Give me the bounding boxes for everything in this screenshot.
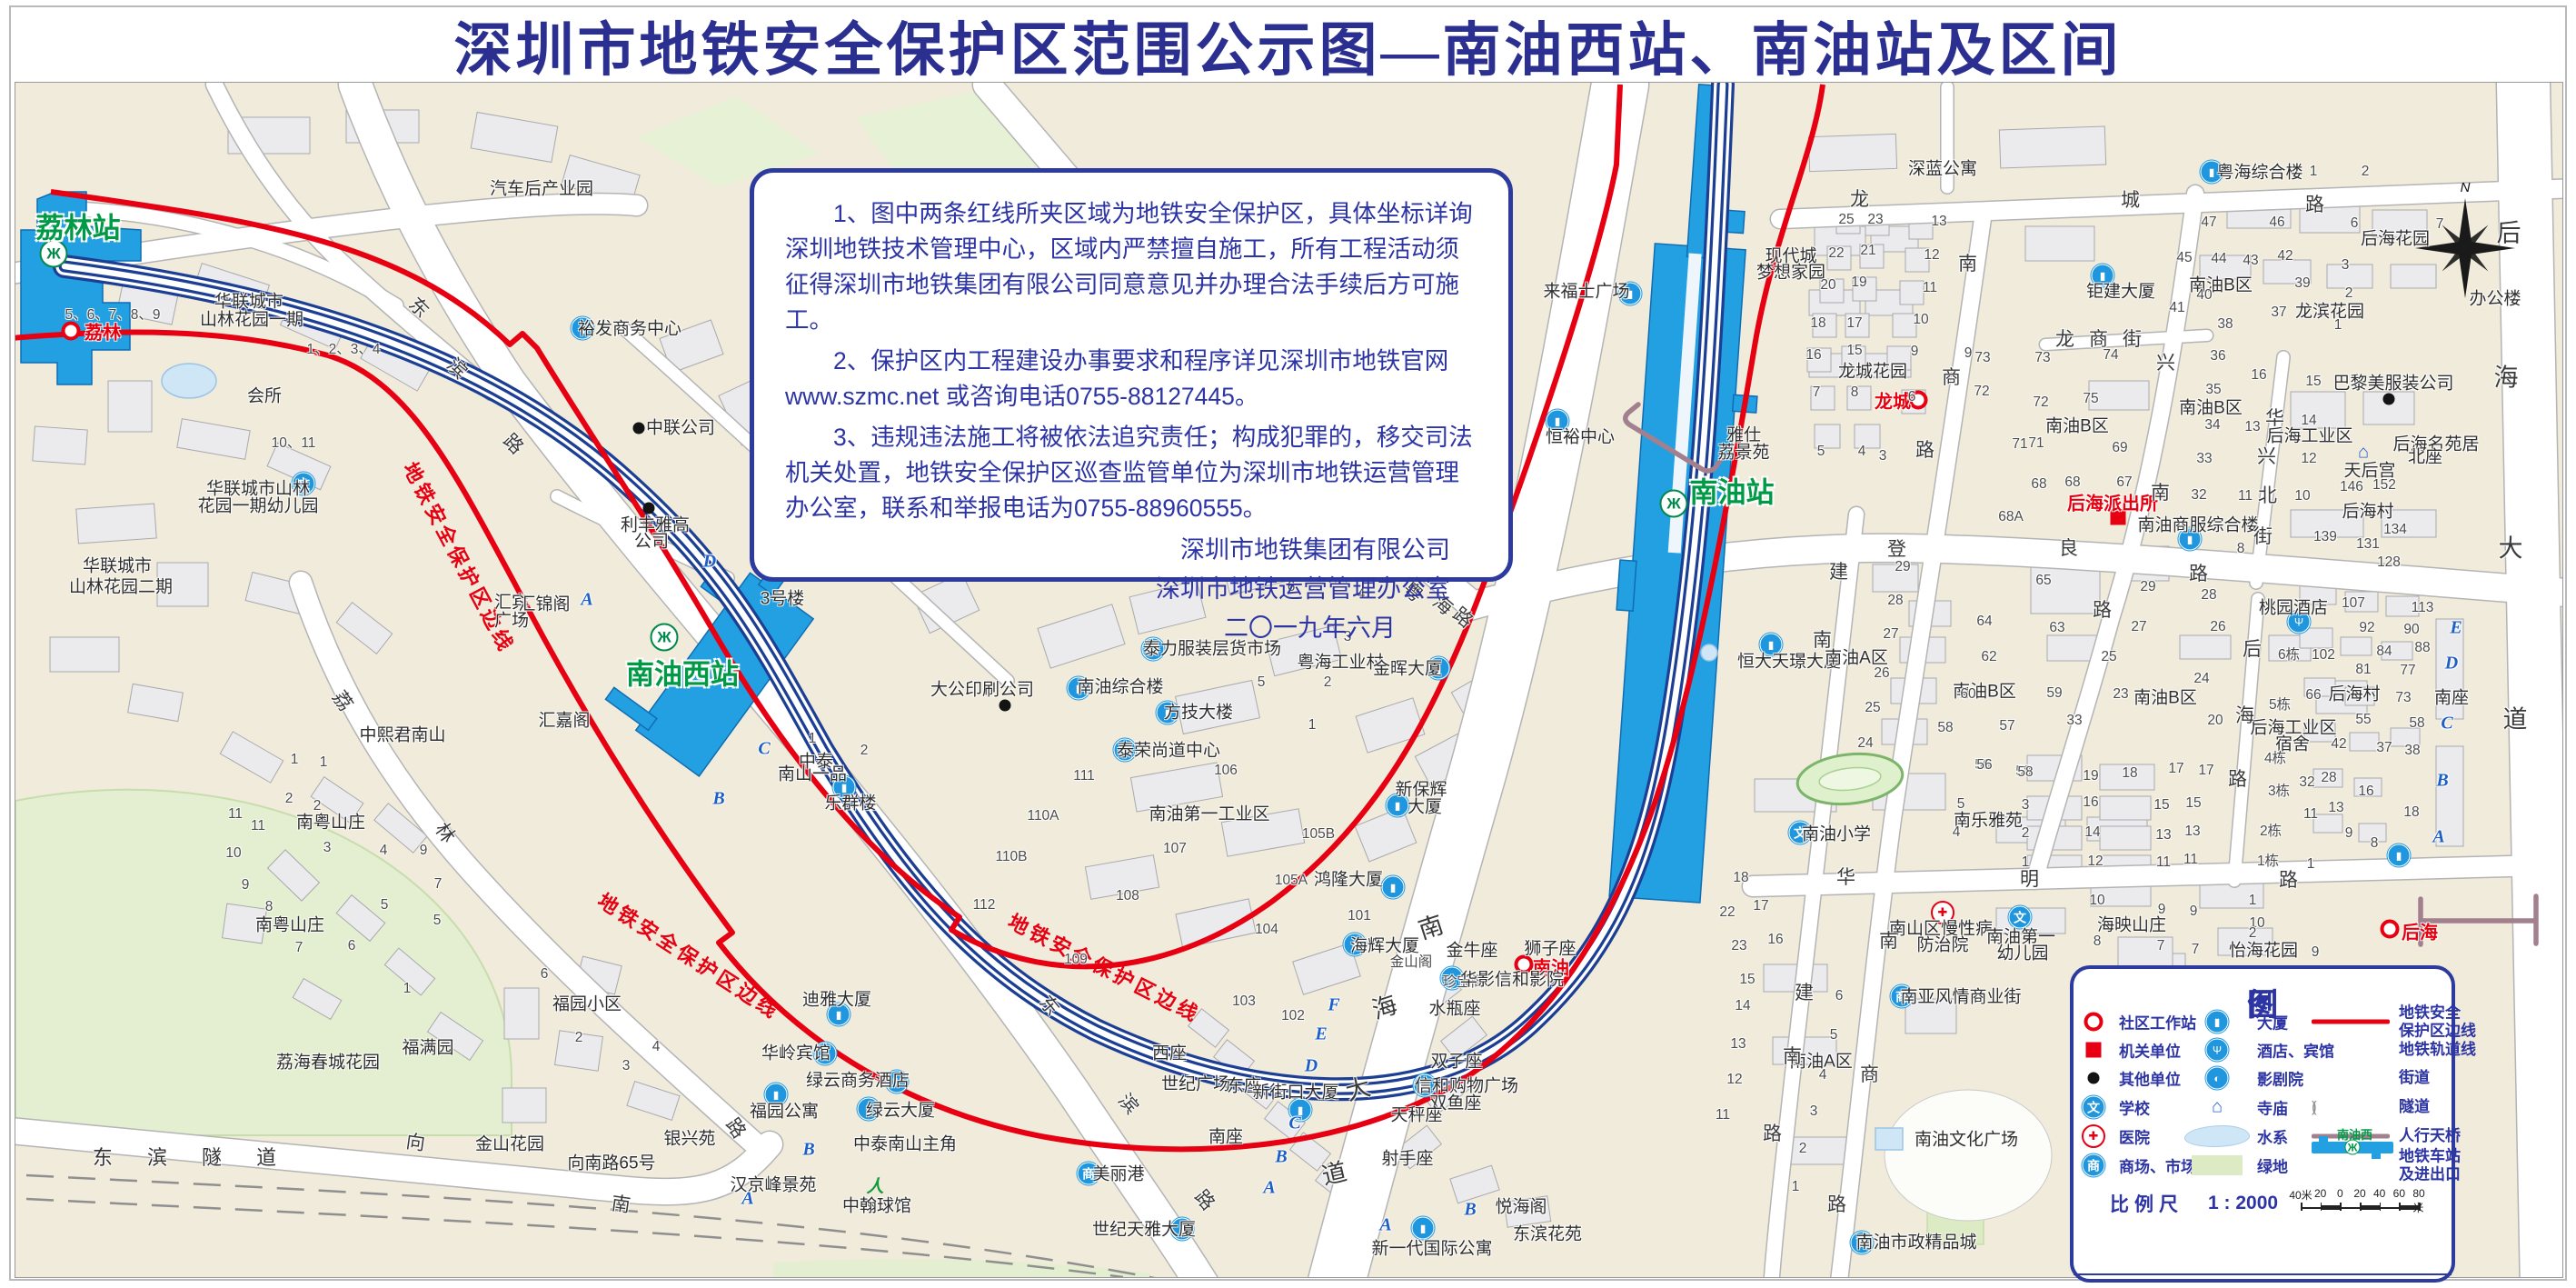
building-icon: ▮	[1068, 677, 1090, 700]
legend-scale-value: 1 : 2000	[2208, 1193, 2278, 1214]
hotel-icon: Ψ	[2288, 611, 2311, 634]
other-unit-icon	[643, 503, 655, 514]
legend-divider	[2074, 1273, 2452, 1275]
building-icon: ▮	[765, 1083, 788, 1106]
legend-symbol-label: 商场、市场	[2119, 1154, 2196, 1177]
compass-n-label: N	[2461, 180, 2471, 195]
notice-signature-office: 深圳市地铁运营管理办公室	[785, 571, 1450, 608]
map-icon: 人	[866, 1173, 883, 1198]
notice-signature-date: 二〇一九年六月	[785, 610, 1396, 647]
building-icon: ▮	[572, 317, 594, 340]
map-icon: 商	[1891, 985, 1914, 1008]
notice-map-page: 深圳市地铁安全保护区范围公示图—南油西站、南油站及区间	[0, 0, 2576, 1288]
map-icon: ▮	[765, 1083, 788, 1106]
legend-building-label: 绿地	[2257, 1154, 2288, 1177]
legend-building-icon: ⌂	[2212, 1097, 2223, 1118]
notice-box: 1、图中两条红线所夹区域为地铁安全保护区，具体坐标详询深圳地铁技术管理中心，区域…	[750, 168, 1513, 582]
metro-logo-icon: Ж	[40, 240, 68, 268]
notice-paragraph-1: 1、图中两条红线所夹区域为地铁安全保护区，具体坐标详询深圳地铁技术管理中心，区域…	[785, 196, 1477, 338]
building-icon: ▮	[858, 1098, 880, 1121]
map-icon: ✚	[1931, 901, 1954, 924]
legend-symbol-icon	[2086, 1043, 2102, 1058]
community-station-icon	[1909, 391, 1928, 410]
map-icon	[62, 322, 81, 341]
notice-paragraph-2: 2、保护区内工程建设办事要求和程序详见深圳市地铁官网 www.szmc.net …	[785, 344, 1477, 414]
legend-line-sample: Ж南油西	[2312, 1129, 2393, 1165]
map-icon: ▮	[1157, 702, 1179, 724]
building-icon: ▮	[1619, 283, 1642, 305]
legend-symbol-label: 社区工作站	[2119, 1011, 2196, 1033]
map-icon: 商	[1078, 1163, 1100, 1185]
legend-scale-label: 比例尺	[2110, 1190, 2183, 1217]
map-icon: ▮	[1171, 1218, 1194, 1241]
building-icon: ▮	[2179, 528, 2202, 551]
building-icon: ▮	[1157, 702, 1179, 724]
legend-building-label: 大厦	[2257, 1011, 2288, 1033]
map-icon: ▮	[1760, 634, 1783, 656]
map-icon: 文	[1789, 822, 1812, 844]
legend-box: 图 例 社区工作站机关单位其他单位文学校✚医院商商场、市场▮大厦Ψ酒店、宾馆◐影…	[2070, 965, 2455, 1283]
metro-logo-icon: Ж	[1660, 490, 1688, 518]
legend-building-icon: ◐	[2206, 1067, 2229, 1090]
legend-symbol-label: 机关单位	[2119, 1039, 2181, 1062]
map-icon: ▮	[1068, 677, 1090, 700]
map-icon: Ж	[651, 624, 679, 652]
building-icon: ▮	[1114, 739, 1137, 762]
legend-symbol-label: 学校	[2119, 1096, 2150, 1119]
map-icon: ▮	[2179, 528, 2202, 551]
map-icon: ▮	[1114, 739, 1137, 762]
market-icon: 商	[1078, 1163, 1100, 1185]
map-icon	[2383, 394, 2395, 405]
building-icon: ▮	[2201, 161, 2223, 184]
map-icon: ▮	[572, 317, 594, 340]
map-icon: ▮	[1382, 876, 1405, 899]
metro-logo-icon: Ж	[651, 624, 679, 652]
map-icon: ▮	[833, 776, 856, 799]
community-station-icon	[62, 322, 81, 341]
government-unit-icon	[2111, 510, 2126, 525]
map-icon: ▮	[1344, 934, 1367, 956]
map-icon: ▮	[2092, 265, 2114, 287]
notice-signature-company: 深圳市地铁集团有限公司	[785, 532, 1450, 569]
legend-symbol-label: 其他单位	[2119, 1067, 2181, 1090]
page-title: 深圳市地铁安全保护区范围公示图—南油西站、南油站及区间	[0, 9, 2576, 82]
legend-rows: 社区工作站机关单位其他单位文学校✚医院商商场、市场▮大厦Ψ酒店、宾馆◐影剧院⌂寺…	[2074, 969, 2452, 1279]
map-icon: Ψ	[2288, 611, 2311, 634]
map-icon: ▮	[1412, 1217, 1435, 1240]
map-icon	[1000, 700, 1011, 712]
map-icon	[633, 423, 645, 434]
legend-scale-bar: 40米20020406080米	[2301, 1187, 2419, 1223]
map-icon	[643, 503, 655, 514]
legend-building-icon: Ψ	[2206, 1039, 2229, 1062]
building-icon: ▮	[1547, 410, 1569, 433]
hospital-icon: ✚	[1931, 901, 1954, 924]
map-icon	[1515, 955, 1534, 974]
school-icon: 文	[1789, 822, 1812, 844]
legend-building-label: 酒店、宾馆	[2257, 1039, 2334, 1062]
map-icon: ▮	[2388, 844, 2411, 867]
temple-icon: ⌂	[2358, 443, 2369, 464]
map-icon: ▮	[1547, 410, 1569, 433]
building-icon: ▮	[828, 1003, 850, 1026]
map-icon: ▮	[828, 1003, 850, 1026]
legend-line-label: 地铁安全 保护区边线	[2399, 1003, 2476, 1039]
map-icon: 商	[1414, 1074, 1437, 1097]
market-icon: 商	[1891, 985, 1914, 1008]
building-icon: ▮	[1344, 934, 1367, 956]
other-unit-icon	[1000, 700, 1011, 712]
legend-building-icon	[2184, 1125, 2250, 1147]
map-icon	[2381, 920, 2400, 939]
legend-building-label: 水系	[2257, 1125, 2288, 1148]
map-icon: ▮	[1289, 1099, 1312, 1122]
building-icon: ▮	[1171, 1218, 1194, 1241]
map-icon: ▮	[1387, 794, 1409, 817]
community-station-icon	[1515, 955, 1534, 974]
map-icon: ▮	[2201, 161, 2223, 184]
map-icon: Ж	[1660, 490, 1688, 518]
map-icon: ◐	[1441, 967, 1464, 990]
legend-building-icon: ▮	[2206, 1011, 2229, 1033]
other-unit-icon	[2383, 394, 2395, 405]
legend-building-label: 寺庙	[2257, 1096, 2288, 1119]
map-icon	[1909, 391, 1928, 410]
map-icon: 商	[1851, 1232, 1874, 1254]
map-icon: Ψ	[886, 1071, 909, 1093]
map-icon	[2111, 510, 2126, 525]
sports-icon: 人	[866, 1173, 883, 1198]
map-icon: 文	[293, 473, 315, 495]
market-icon: 商	[1414, 1074, 1437, 1097]
legend-symbol-icon	[2088, 1073, 2100, 1084]
school-icon: 文	[293, 473, 315, 495]
legend-line-label: 人行天桥	[2399, 1127, 2461, 1145]
other-unit-icon	[633, 423, 645, 434]
school-icon: 文	[2009, 906, 2032, 929]
legend-symbol-icon: ✚	[2082, 1124, 2105, 1148]
building-icon: ▮	[833, 776, 856, 799]
building-icon: ▮	[2092, 265, 2114, 287]
building-icon: ▮	[1412, 1217, 1435, 1240]
map-icon: Ψ	[814, 1043, 837, 1065]
building-icon: ▮	[1289, 1099, 1312, 1122]
building-icon: ▮	[1382, 876, 1405, 899]
map-icon: ▮	[1427, 657, 1450, 680]
hotel-icon: Ψ	[886, 1071, 909, 1093]
building-icon: ▮	[1760, 634, 1783, 656]
legend-line-label: 街道	[2399, 1069, 2430, 1087]
legend-station-name: 南油西	[2337, 1125, 2372, 1143]
legend-symbol-icon	[2084, 1013, 2104, 1032]
legend-line-label: 隧道	[2399, 1098, 2430, 1116]
legend-building-icon	[2192, 1155, 2243, 1175]
market-icon: 商	[1851, 1232, 1874, 1254]
legend-building-label: 影剧院	[2257, 1067, 2303, 1090]
legend-line-sample	[2312, 1020, 2390, 1024]
map-icon: 文	[2009, 906, 2032, 929]
building-icon: ▮	[1387, 794, 1409, 817]
notice-paragraph-3: 3、违规违法施工将被依法追究责任；构成犯罪的，移交司法机关处置，地铁安全保护区巡…	[785, 420, 1477, 526]
map-icon: ⌂	[2358, 443, 2369, 464]
cinema-icon: ◐	[1441, 967, 1464, 990]
legend-symbol-label: 医院	[2119, 1125, 2150, 1148]
map-icon: Ж	[40, 240, 68, 268]
map-icon: ▮	[858, 1098, 880, 1121]
building-icon: ▮	[2388, 844, 2411, 867]
building-icon: ▮	[1427, 657, 1450, 680]
legend-line-label: 地铁轨道线	[2399, 1041, 2476, 1059]
legend-symbol-icon: 商	[2083, 1154, 2105, 1177]
map-icon: ▮	[1619, 283, 1642, 305]
hotel-icon: Ψ	[814, 1043, 837, 1065]
legend-line-label: 地铁车站 及进出口	[2399, 1147, 2461, 1183]
legend-symbol-icon: 文	[2083, 1096, 2105, 1119]
community-station-icon	[2381, 920, 2400, 939]
